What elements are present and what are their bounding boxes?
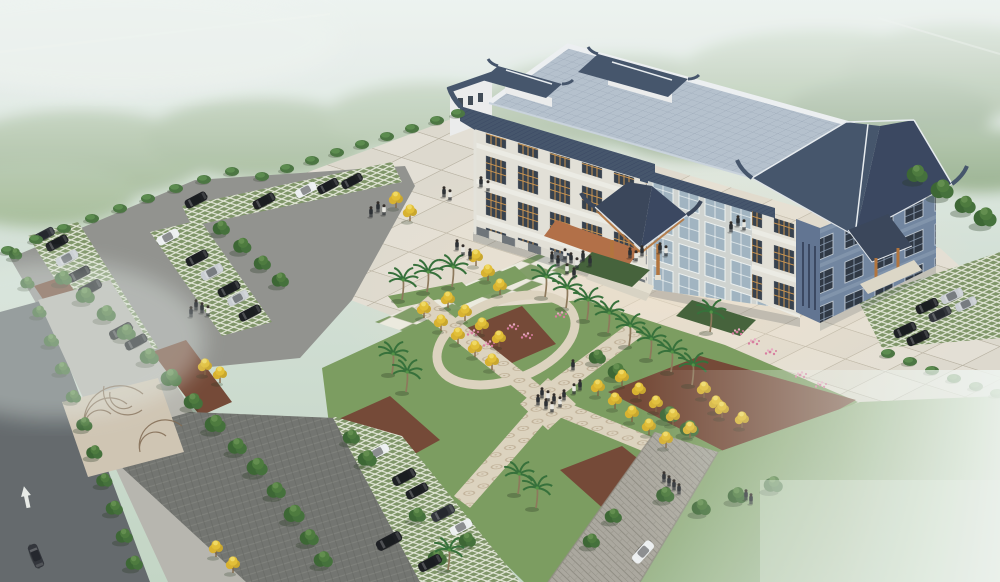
mist-overlays: [0, 0, 1000, 582]
architectural-rendering: Aerial architectural rendering of a Chin…: [0, 0, 1000, 582]
rendering-canvas: Aerial architectural rendering of a Chin…: [0, 0, 1000, 582]
